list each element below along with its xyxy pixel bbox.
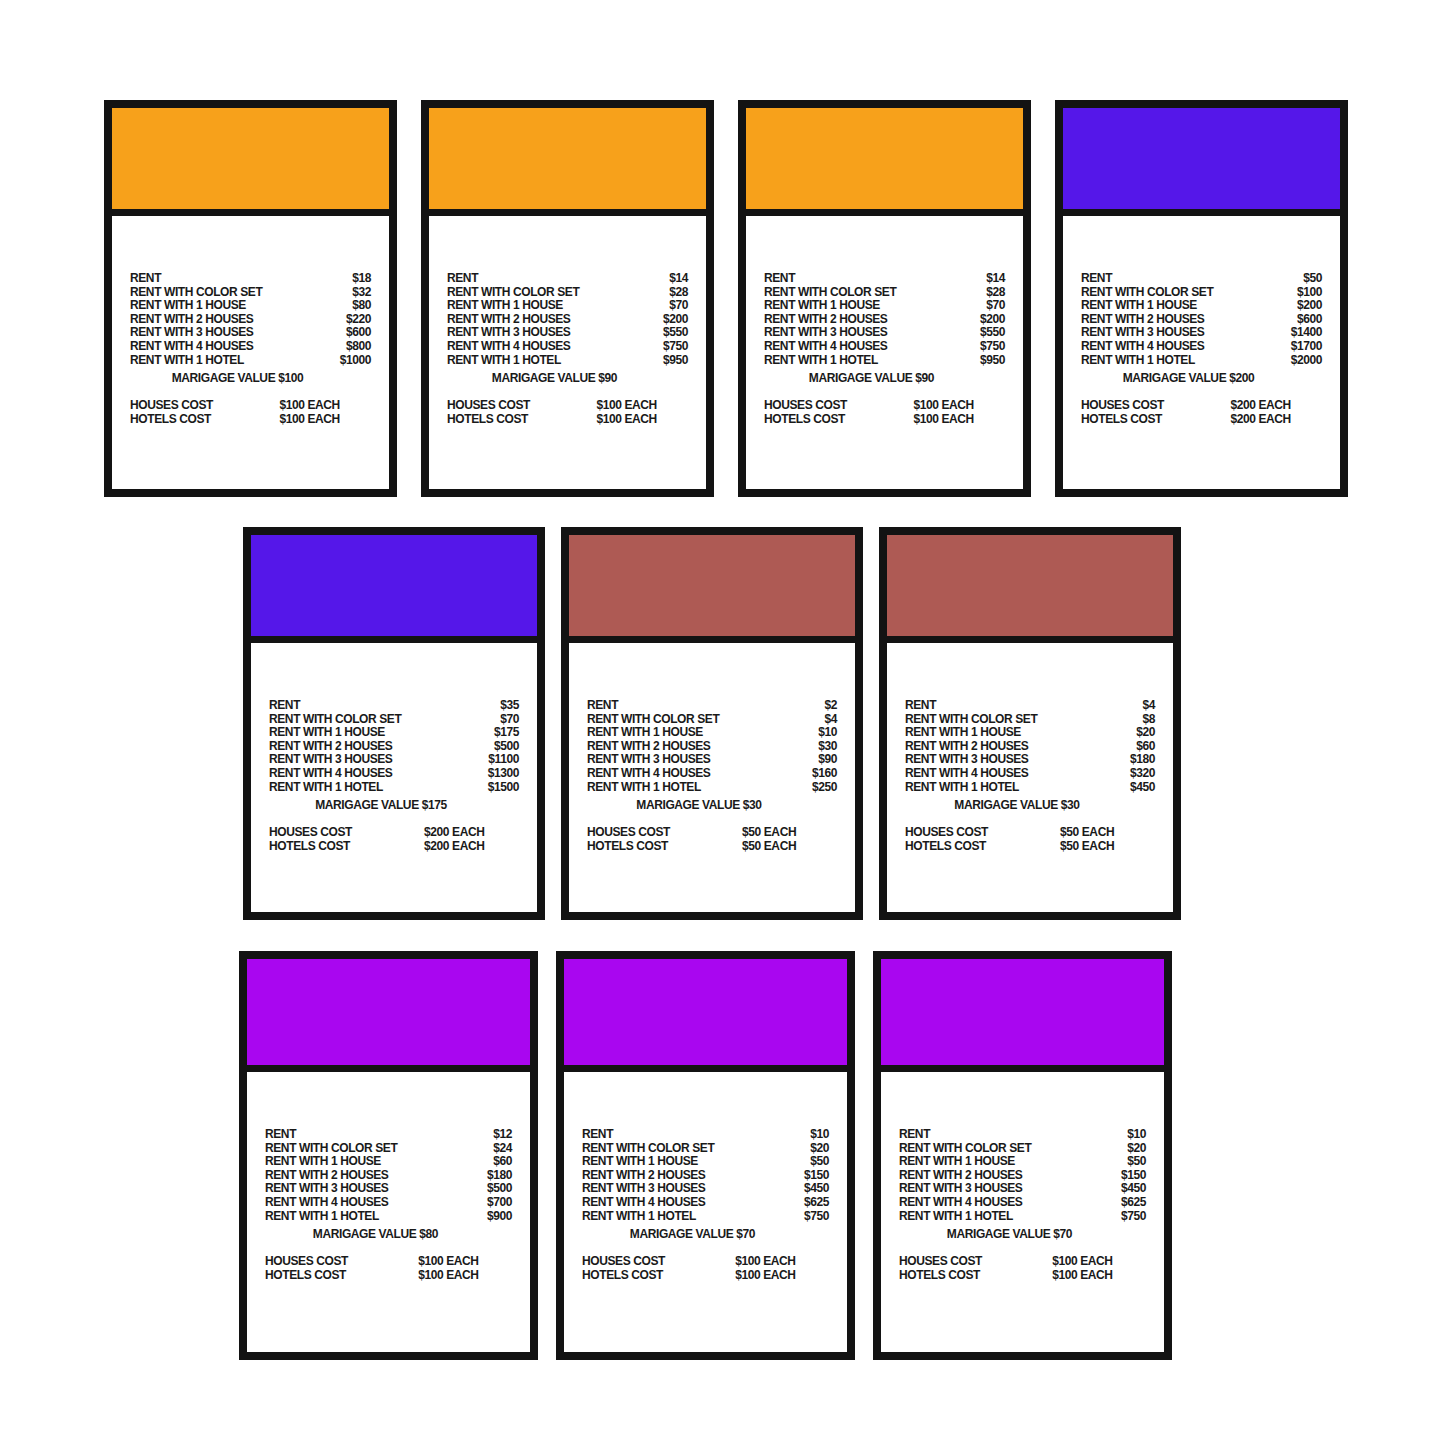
rent-value: $10 — [810, 1128, 829, 1142]
rent-row: RENT WITH 3 HOUSES $90 — [587, 753, 837, 767]
rent-2-houses-label: RENT WITH 2 HOUSES — [447, 313, 570, 327]
rent-row: RENT WITH 2 HOUSES $220 — [130, 313, 371, 327]
rent-color-set-label: RENT WITH COLOR SET — [1081, 286, 1213, 300]
rent-row: RENT WITH 1 HOUSE $80 — [130, 299, 371, 313]
color-band — [429, 108, 706, 216]
color-band — [881, 959, 1164, 1072]
rent-value: $4 — [1142, 699, 1155, 713]
rent-1-hotel-label: RENT WITH 1 HOTEL — [764, 354, 878, 368]
costs-table: HOUSES COST $200 EACH HOTELS COST $200 E… — [1081, 399, 1322, 427]
rent-row: RENT WITH 1 HOTEL $1500 — [269, 781, 519, 795]
rent-row: RENT WITH 2 HOUSES $200 — [447, 313, 688, 327]
rent-1-house-value: $10 — [818, 726, 837, 740]
rent-4-houses-label: RENT WITH 4 HOUSES — [764, 340, 887, 354]
rent-1-house-label: RENT WITH 1 HOUSE — [130, 299, 246, 313]
rent-row: RENT $14 — [764, 272, 1005, 286]
rent-1-hotel-label: RENT WITH 1 HOTEL — [899, 1210, 1013, 1224]
houses-cost-label: HOUSES COST — [1081, 399, 1230, 413]
rent-row: RENT WITH 4 HOUSES $1300 — [269, 767, 519, 781]
rent-4-houses-value: $750 — [980, 340, 1005, 354]
color-band — [746, 108, 1023, 216]
hotels-cost-value: $100 EACH — [279, 413, 339, 427]
rent-row: RENT WITH 1 HOUSE $50 — [582, 1155, 829, 1169]
houses-cost-label: HOUSES COST — [582, 1255, 735, 1269]
rent-label: RENT — [764, 272, 795, 286]
rent-1-house-label: RENT WITH 1 HOUSE — [587, 726, 703, 740]
rent-3-houses-value: $600 — [346, 326, 371, 340]
rent-table: RENT $10 RENT WITH COLOR SET $20 RENT WI… — [582, 1128, 829, 1223]
rent-3-houses-label: RENT WITH 3 HOUSES — [265, 1182, 388, 1196]
rent-color-set-label: RENT WITH COLOR SET — [269, 713, 401, 727]
rent-row: RENT WITH 3 HOUSES $450 — [899, 1182, 1146, 1196]
rent-1-house-label: RENT WITH 1 HOUSE — [265, 1155, 381, 1169]
costs-table: HOUSES COST $50 EACH HOTELS COST $50 EAC… — [587, 826, 837, 854]
hotels-cost-row: HOTELS COST $100 EACH — [582, 1269, 829, 1283]
rent-row: RENT $2 — [587, 699, 837, 713]
houses-cost-row: HOUSES COST $200 EACH — [1081, 399, 1322, 413]
rent-color-set-label: RENT WITH COLOR SET — [265, 1142, 397, 1156]
rent-row: RENT $12 — [265, 1128, 512, 1142]
rent-row: RENT WITH COLOR SET $20 — [582, 1142, 829, 1156]
rent-2-houses-value: $200 — [663, 313, 688, 327]
property-card: RENT $35 RENT WITH COLOR SET $70 RENT WI… — [243, 527, 545, 920]
costs-table: HOUSES COST $100 EACH HOTELS COST $100 E… — [265, 1255, 512, 1283]
rent-row: RENT WITH 4 HOUSES $750 — [764, 340, 1005, 354]
rent-1-house-value: $50 — [1127, 1155, 1146, 1169]
rent-2-houses-label: RENT WITH 2 HOUSES — [899, 1169, 1022, 1183]
houses-cost-row: HOUSES COST $200 EACH — [269, 826, 519, 840]
houses-cost-value: $100 EACH — [735, 1255, 795, 1269]
houses-cost-row: HOUSES COST $100 EACH — [447, 399, 688, 413]
hotels-cost-row: HOTELS COST $100 EACH — [130, 413, 371, 427]
rent-4-houses-value: $800 — [346, 340, 371, 354]
rent-color-set-value: $100 — [1297, 286, 1322, 300]
rent-1-house-value: $60 — [493, 1155, 512, 1169]
rent-value: $35 — [500, 699, 519, 713]
rent-2-houses-value: $180 — [487, 1169, 512, 1183]
rent-1-hotel-value: $1500 — [488, 781, 519, 795]
rent-row: RENT WITH 1 HOTEL $950 — [447, 354, 688, 368]
marigage-value-line: MARIGAGE VALUE $90 — [764, 371, 1005, 385]
houses-cost-value: $100 EACH — [596, 399, 656, 413]
rent-3-houses-label: RENT WITH 3 HOUSES — [587, 753, 710, 767]
marigage-value-line: MARIGAGE VALUE $30 — [905, 798, 1155, 812]
rent-1-hotel-value: $2000 — [1291, 354, 1322, 368]
hotels-cost-row: HOTELS COST $100 EACH — [764, 413, 1005, 427]
rent-color-set-value: $8 — [1142, 713, 1155, 727]
rent-2-houses-value: $200 — [980, 313, 1005, 327]
rent-value: $14 — [669, 272, 688, 286]
houses-cost-label: HOUSES COST — [447, 399, 596, 413]
rent-1-house-value: $50 — [810, 1155, 829, 1169]
rent-3-houses-value: $450 — [804, 1182, 829, 1196]
rent-4-houses-value: $700 — [487, 1196, 512, 1210]
rent-1-hotel-label: RENT WITH 1 HOTEL — [447, 354, 561, 368]
rent-label: RENT — [899, 1128, 930, 1142]
rent-3-houses-label: RENT WITH 3 HOUSES — [269, 753, 392, 767]
hotels-cost-label: HOTELS COST — [587, 840, 742, 854]
rent-row: RENT WITH 1 HOTEL $1000 — [130, 354, 371, 368]
rent-row: RENT WITH COLOR SET $20 — [899, 1142, 1146, 1156]
rent-4-houses-label: RENT WITH 4 HOUSES — [905, 767, 1028, 781]
card-body: RENT $50 RENT WITH COLOR SET $100 RENT W… — [1063, 216, 1340, 489]
property-card: RENT $14 RENT WITH COLOR SET $28 RENT WI… — [421, 100, 714, 497]
rent-row: RENT $35 — [269, 699, 519, 713]
marigage-value-line: MARIGAGE VALUE $100 — [130, 371, 371, 385]
rent-row: RENT WITH 1 HOUSE $70 — [447, 299, 688, 313]
rent-2-houses-label: RENT WITH 2 HOUSES — [905, 740, 1028, 754]
rent-row: RENT WITH COLOR SET $70 — [269, 713, 519, 727]
rent-color-set-value: $24 — [493, 1142, 512, 1156]
rent-4-houses-label: RENT WITH 4 HOUSES — [130, 340, 253, 354]
marigage-value-line: MARIGAGE VALUE $70 — [899, 1227, 1146, 1241]
hotels-cost-value: $100 EACH — [596, 413, 656, 427]
costs-table: HOUSES COST $100 EACH HOTELS COST $100 E… — [582, 1255, 829, 1283]
card-body: RENT $35 RENT WITH COLOR SET $70 RENT WI… — [251, 643, 537, 912]
rent-row: RENT WITH COLOR SET $4 — [587, 713, 837, 727]
card-body: RENT $10 RENT WITH COLOR SET $20 RENT WI… — [881, 1072, 1164, 1352]
rent-3-houses-value: $550 — [663, 326, 688, 340]
rent-1-house-value: $80 — [352, 299, 371, 313]
rent-color-set-label: RENT WITH COLOR SET — [582, 1142, 714, 1156]
rent-2-houses-value: $220 — [346, 313, 371, 327]
rent-4-houses-value: $1700 — [1291, 340, 1322, 354]
rent-1-house-label: RENT WITH 1 HOUSE — [582, 1155, 698, 1169]
hotels-cost-row: HOTELS COST $200 EACH — [269, 840, 519, 854]
rent-4-houses-value: $625 — [1121, 1196, 1146, 1210]
marigage-value-line: MARIGAGE VALUE $80 — [265, 1227, 512, 1241]
rent-label: RENT — [130, 272, 161, 286]
rent-row: RENT $10 — [582, 1128, 829, 1142]
rent-row: RENT WITH 1 HOUSE $60 — [265, 1155, 512, 1169]
rent-row: RENT WITH 1 HOTEL $450 — [905, 781, 1155, 795]
houses-cost-label: HOUSES COST — [764, 399, 913, 413]
rent-1-house-label: RENT WITH 1 HOUSE — [905, 726, 1021, 740]
rent-label: RENT — [582, 1128, 613, 1142]
hotels-cost-value: $100 EACH — [913, 413, 973, 427]
costs-table: HOUSES COST $100 EACH HOTELS COST $100 E… — [130, 399, 371, 427]
costs-table: HOUSES COST $200 EACH HOTELS COST $200 E… — [269, 826, 519, 854]
marigage-value-line: MARIGAGE VALUE $200 — [1081, 371, 1322, 385]
card-body: RENT $12 RENT WITH COLOR SET $24 RENT WI… — [247, 1072, 530, 1352]
rent-row: RENT WITH 1 HOUSE $10 — [587, 726, 837, 740]
rent-3-houses-value: $450 — [1121, 1182, 1146, 1196]
houses-cost-value: $50 EACH — [742, 826, 796, 840]
rent-row: RENT WITH COLOR SET $100 — [1081, 286, 1322, 300]
hotels-cost-value: $50 EACH — [1060, 840, 1114, 854]
rent-label: RENT — [905, 699, 936, 713]
rent-1-hotel-label: RENT WITH 1 HOTEL — [265, 1210, 379, 1224]
rent-color-set-label: RENT WITH COLOR SET — [905, 713, 1037, 727]
rent-label: RENT — [265, 1128, 296, 1142]
card-body: RENT $10 RENT WITH COLOR SET $20 RENT WI… — [564, 1072, 847, 1352]
rent-label: RENT — [1081, 272, 1112, 286]
color-band — [247, 959, 530, 1072]
rent-3-houses-value: $550 — [980, 326, 1005, 340]
rent-1-hotel-label: RENT WITH 1 HOTEL — [582, 1210, 696, 1224]
rent-1-hotel-label: RENT WITH 1 HOTEL — [269, 781, 383, 795]
costs-table: HOUSES COST $100 EACH HOTELS COST $100 E… — [899, 1255, 1146, 1283]
rent-table: RENT $4 RENT WITH COLOR SET $8 RENT WITH… — [905, 699, 1155, 794]
marigage-value-line: MARIGAGE VALUE $90 — [447, 371, 688, 385]
houses-cost-row: HOUSES COST $100 EACH — [265, 1255, 512, 1269]
property-card: RENT $4 RENT WITH COLOR SET $8 RENT WITH… — [879, 527, 1181, 920]
rent-1-hotel-value: $750 — [1121, 1210, 1146, 1224]
rent-table: RENT $10 RENT WITH COLOR SET $20 RENT WI… — [899, 1128, 1146, 1223]
rent-row: RENT WITH 4 HOUSES $800 — [130, 340, 371, 354]
rent-2-houses-value: $500 — [494, 740, 519, 754]
marigage-value-line: MARIGAGE VALUE $175 — [269, 798, 519, 812]
rent-1-house-value: $175 — [494, 726, 519, 740]
hotels-cost-label: HOTELS COST — [899, 1269, 1052, 1283]
rent-2-houses-label: RENT WITH 2 HOUSES — [764, 313, 887, 327]
rent-row: RENT WITH COLOR SET $8 — [905, 713, 1155, 727]
houses-cost-value: $200 EACH — [1230, 399, 1290, 413]
hotels-cost-label: HOTELS COST — [764, 413, 913, 427]
rent-1-hotel-label: RENT WITH 1 HOTEL — [1081, 354, 1195, 368]
rent-color-set-value: $70 — [500, 713, 519, 727]
rent-color-set-value: $4 — [824, 713, 837, 727]
houses-cost-label: HOUSES COST — [905, 826, 1060, 840]
rent-row: RENT WITH 2 HOUSES $500 — [269, 740, 519, 754]
rent-row: RENT WITH 2 HOUSES $200 — [764, 313, 1005, 327]
rent-table: RENT $35 RENT WITH COLOR SET $70 RENT WI… — [269, 699, 519, 794]
hotels-cost-label: HOTELS COST — [265, 1269, 418, 1283]
hotels-cost-value: $100 EACH — [1052, 1269, 1112, 1283]
hotels-cost-value: $100 EACH — [418, 1269, 478, 1283]
rent-row: RENT WITH 4 HOUSES $1700 — [1081, 340, 1322, 354]
houses-cost-value: $100 EACH — [418, 1255, 478, 1269]
rent-3-houses-label: RENT WITH 3 HOUSES — [582, 1182, 705, 1196]
property-card: RENT $14 RENT WITH COLOR SET $28 RENT WI… — [738, 100, 1031, 497]
rent-row: RENT WITH 1 HOUSE $20 — [905, 726, 1155, 740]
rent-row: RENT $4 — [905, 699, 1155, 713]
houses-cost-value: $100 EACH — [913, 399, 973, 413]
rent-row: RENT WITH 3 HOUSES $1400 — [1081, 326, 1322, 340]
rent-row: RENT WITH 1 HOUSE $200 — [1081, 299, 1322, 313]
rent-row: RENT WITH 3 HOUSES $1100 — [269, 753, 519, 767]
rent-table: RENT $50 RENT WITH COLOR SET $100 RENT W… — [1081, 272, 1322, 367]
color-band — [887, 535, 1173, 643]
property-card: RENT $10 RENT WITH COLOR SET $20 RENT WI… — [873, 951, 1172, 1360]
rent-3-houses-value: $500 — [487, 1182, 512, 1196]
rent-label: RENT — [269, 699, 300, 713]
rent-2-houses-value: $150 — [804, 1169, 829, 1183]
rent-row: RENT $18 — [130, 272, 371, 286]
houses-cost-value: $100 EACH — [279, 399, 339, 413]
card-body: RENT $14 RENT WITH COLOR SET $28 RENT WI… — [746, 216, 1023, 489]
hotels-cost-row: HOTELS COST $100 EACH — [265, 1269, 512, 1283]
rent-2-houses-label: RENT WITH 2 HOUSES — [130, 313, 253, 327]
rent-row: RENT WITH 4 HOUSES $320 — [905, 767, 1155, 781]
rent-color-set-label: RENT WITH COLOR SET — [447, 286, 579, 300]
card-row-1: RENT $18 RENT WITH COLOR SET $32 RENT WI… — [104, 100, 1348, 497]
rent-color-set-label: RENT WITH COLOR SET — [587, 713, 719, 727]
rent-row: RENT WITH 2 HOUSES $180 — [265, 1169, 512, 1183]
rent-4-houses-label: RENT WITH 4 HOUSES — [899, 1196, 1022, 1210]
rent-1-hotel-value: $750 — [804, 1210, 829, 1224]
rent-3-houses-label: RENT WITH 3 HOUSES — [447, 326, 570, 340]
rent-1-house-label: RENT WITH 1 HOUSE — [899, 1155, 1015, 1169]
card-body: RENT $18 RENT WITH COLOR SET $32 RENT WI… — [112, 216, 389, 489]
color-band — [564, 959, 847, 1072]
hotels-cost-value: $200 EACH — [1230, 413, 1290, 427]
rent-color-set-value: $20 — [1127, 1142, 1146, 1156]
rent-1-house-label: RENT WITH 1 HOUSE — [1081, 299, 1197, 313]
rent-table: RENT $14 RENT WITH COLOR SET $28 RENT WI… — [764, 272, 1005, 367]
rent-4-houses-value: $160 — [812, 767, 837, 781]
rent-4-houses-label: RENT WITH 4 HOUSES — [447, 340, 570, 354]
rent-value: $2 — [824, 699, 837, 713]
card-grid: RENT $18 RENT WITH COLOR SET $32 RENT WI… — [0, 0, 1445, 1445]
rent-4-houses-value: $750 — [663, 340, 688, 354]
rent-label: RENT — [447, 272, 478, 286]
card-body: RENT $2 RENT WITH COLOR SET $4 RENT WITH… — [569, 643, 855, 912]
rent-2-houses-label: RENT WITH 2 HOUSES — [582, 1169, 705, 1183]
rent-row: RENT WITH COLOR SET $32 — [130, 286, 371, 300]
rent-4-houses-value: $320 — [1130, 767, 1155, 781]
rent-color-set-value: $28 — [986, 286, 1005, 300]
rent-row: RENT $14 — [447, 272, 688, 286]
rent-value: $12 — [493, 1128, 512, 1142]
hotels-cost-label: HOTELS COST — [269, 840, 424, 854]
rent-row: RENT WITH 1 HOTEL $950 — [764, 354, 1005, 368]
rent-row: RENT WITH 3 HOUSES $500 — [265, 1182, 512, 1196]
rent-row: RENT WITH 3 HOUSES $450 — [582, 1182, 829, 1196]
rent-1-hotel-value: $250 — [812, 781, 837, 795]
rent-1-house-value: $200 — [1297, 299, 1322, 313]
houses-cost-value: $100 EACH — [1052, 1255, 1112, 1269]
rent-row: RENT WITH 4 HOUSES $625 — [899, 1196, 1146, 1210]
rent-1-hotel-value: $450 — [1130, 781, 1155, 795]
rent-value: $18 — [352, 272, 371, 286]
rent-1-hotel-label: RENT WITH 1 HOTEL — [130, 354, 244, 368]
rent-value: $50 — [1303, 272, 1322, 286]
color-band — [251, 535, 537, 643]
rent-3-houses-value: $180 — [1130, 753, 1155, 767]
rent-3-houses-value: $90 — [818, 753, 837, 767]
rent-row: RENT WITH 4 HOUSES $160 — [587, 767, 837, 781]
hotels-cost-label: HOTELS COST — [1081, 413, 1230, 427]
rent-row: RENT WITH 4 HOUSES $700 — [265, 1196, 512, 1210]
houses-cost-row: HOUSES COST $100 EACH — [130, 399, 371, 413]
rent-2-houses-label: RENT WITH 2 HOUSES — [1081, 313, 1204, 327]
hotels-cost-value: $50 EACH — [742, 840, 796, 854]
rent-row: RENT WITH 3 HOUSES $180 — [905, 753, 1155, 767]
rent-4-houses-label: RENT WITH 4 HOUSES — [587, 767, 710, 781]
rent-4-houses-label: RENT WITH 4 HOUSES — [1081, 340, 1204, 354]
property-card: RENT $12 RENT WITH COLOR SET $24 RENT WI… — [239, 951, 538, 1360]
hotels-cost-label: HOTELS COST — [905, 840, 1060, 854]
color-band — [112, 108, 389, 216]
rent-3-houses-label: RENT WITH 3 HOUSES — [899, 1182, 1022, 1196]
rent-2-houses-label: RENT WITH 2 HOUSES — [587, 740, 710, 754]
rent-3-houses-label: RENT WITH 3 HOUSES — [130, 326, 253, 340]
rent-row: RENT $50 — [1081, 272, 1322, 286]
hotels-cost-label: HOTELS COST — [582, 1269, 735, 1283]
rent-2-houses-value: $600 — [1297, 313, 1322, 327]
rent-row: RENT WITH 3 HOUSES $550 — [764, 326, 1005, 340]
rent-row: RENT WITH 3 HOUSES $550 — [447, 326, 688, 340]
rent-row: RENT WITH 1 HOTEL $250 — [587, 781, 837, 795]
rent-3-houses-label: RENT WITH 3 HOUSES — [1081, 326, 1204, 340]
houses-cost-value: $200 EACH — [424, 826, 484, 840]
rent-row: RENT WITH 2 HOUSES $150 — [899, 1169, 1146, 1183]
rent-1-hotel-label: RENT WITH 1 HOTEL — [587, 781, 701, 795]
rent-2-houses-value: $30 — [818, 740, 837, 754]
rent-row: RENT WITH 1 HOTEL $900 — [265, 1210, 512, 1224]
rent-color-set-value: $20 — [810, 1142, 829, 1156]
rent-row: RENT WITH 1 HOUSE $50 — [899, 1155, 1146, 1169]
rent-row: RENT WITH 3 HOUSES $600 — [130, 326, 371, 340]
property-card: RENT $2 RENT WITH COLOR SET $4 RENT WITH… — [561, 527, 863, 920]
rent-value: $14 — [986, 272, 1005, 286]
marigage-value-line: MARIGAGE VALUE $70 — [582, 1227, 829, 1241]
rent-1-hotel-value: $900 — [487, 1210, 512, 1224]
card-row-2: RENT $35 RENT WITH COLOR SET $70 RENT WI… — [243, 527, 1181, 920]
rent-3-houses-value: $1100 — [488, 753, 519, 767]
houses-cost-row: HOUSES COST $50 EACH — [905, 826, 1155, 840]
rent-3-houses-value: $1400 — [1291, 326, 1322, 340]
rent-row: RENT WITH 2 HOUSES $150 — [582, 1169, 829, 1183]
houses-cost-value: $50 EACH — [1060, 826, 1114, 840]
card-row-3: RENT $12 RENT WITH COLOR SET $24 RENT WI… — [239, 951, 1172, 1360]
costs-table: HOUSES COST $50 EACH HOTELS COST $50 EAC… — [905, 826, 1155, 854]
rent-label: RENT — [587, 699, 618, 713]
costs-table: HOUSES COST $100 EACH HOTELS COST $100 E… — [447, 399, 688, 427]
houses-cost-label: HOUSES COST — [587, 826, 742, 840]
marigage-value-line: MARIGAGE VALUE $30 — [587, 798, 837, 812]
rent-4-houses-label: RENT WITH 4 HOUSES — [265, 1196, 388, 1210]
rent-row: RENT WITH 2 HOUSES $30 — [587, 740, 837, 754]
card-body: RENT $4 RENT WITH COLOR SET $8 RENT WITH… — [887, 643, 1173, 912]
rent-row: RENT WITH COLOR SET $24 — [265, 1142, 512, 1156]
rent-row: RENT WITH 2 HOUSES $600 — [1081, 313, 1322, 327]
rent-table: RENT $18 RENT WITH COLOR SET $32 RENT WI… — [130, 272, 371, 367]
rent-1-house-value: $70 — [986, 299, 1005, 313]
houses-cost-row: HOUSES COST $50 EACH — [587, 826, 837, 840]
rent-color-set-label: RENT WITH COLOR SET — [130, 286, 262, 300]
hotels-cost-row: HOTELS COST $200 EACH — [1081, 413, 1322, 427]
rent-2-houses-label: RENT WITH 2 HOUSES — [269, 740, 392, 754]
rent-row: RENT WITH 1 HOTEL $2000 — [1081, 354, 1322, 368]
rent-1-house-label: RENT WITH 1 HOUSE — [447, 299, 563, 313]
rent-4-houses-value: $1300 — [488, 767, 519, 781]
card-body: RENT $14 RENT WITH COLOR SET $28 RENT WI… — [429, 216, 706, 489]
costs-table: HOUSES COST $100 EACH HOTELS COST $100 E… — [764, 399, 1005, 427]
rent-table: RENT $14 RENT WITH COLOR SET $28 RENT WI… — [447, 272, 688, 367]
rent-1-hotel-value: $950 — [980, 354, 1005, 368]
rent-1-house-value: $20 — [1136, 726, 1155, 740]
rent-color-set-value: $28 — [669, 286, 688, 300]
hotels-cost-value: $100 EACH — [735, 1269, 795, 1283]
rent-1-hotel-label: RENT WITH 1 HOTEL — [905, 781, 1019, 795]
rent-row: RENT WITH COLOR SET $28 — [447, 286, 688, 300]
houses-cost-row: HOUSES COST $100 EACH — [582, 1255, 829, 1269]
property-card: RENT $10 RENT WITH COLOR SET $20 RENT WI… — [556, 951, 855, 1360]
rent-3-houses-label: RENT WITH 3 HOUSES — [764, 326, 887, 340]
houses-cost-label: HOUSES COST — [899, 1255, 1052, 1269]
rent-value: $10 — [1127, 1128, 1146, 1142]
hotels-cost-row: HOTELS COST $100 EACH — [447, 413, 688, 427]
rent-table: RENT $2 RENT WITH COLOR SET $4 RENT WITH… — [587, 699, 837, 794]
rent-4-houses-label: RENT WITH 4 HOUSES — [269, 767, 392, 781]
rent-4-houses-value: $625 — [804, 1196, 829, 1210]
rent-row: RENT $10 — [899, 1128, 1146, 1142]
houses-cost-label: HOUSES COST — [265, 1255, 418, 1269]
rent-color-set-label: RENT WITH COLOR SET — [764, 286, 896, 300]
rent-row: RENT WITH 2 HOUSES $60 — [905, 740, 1155, 754]
